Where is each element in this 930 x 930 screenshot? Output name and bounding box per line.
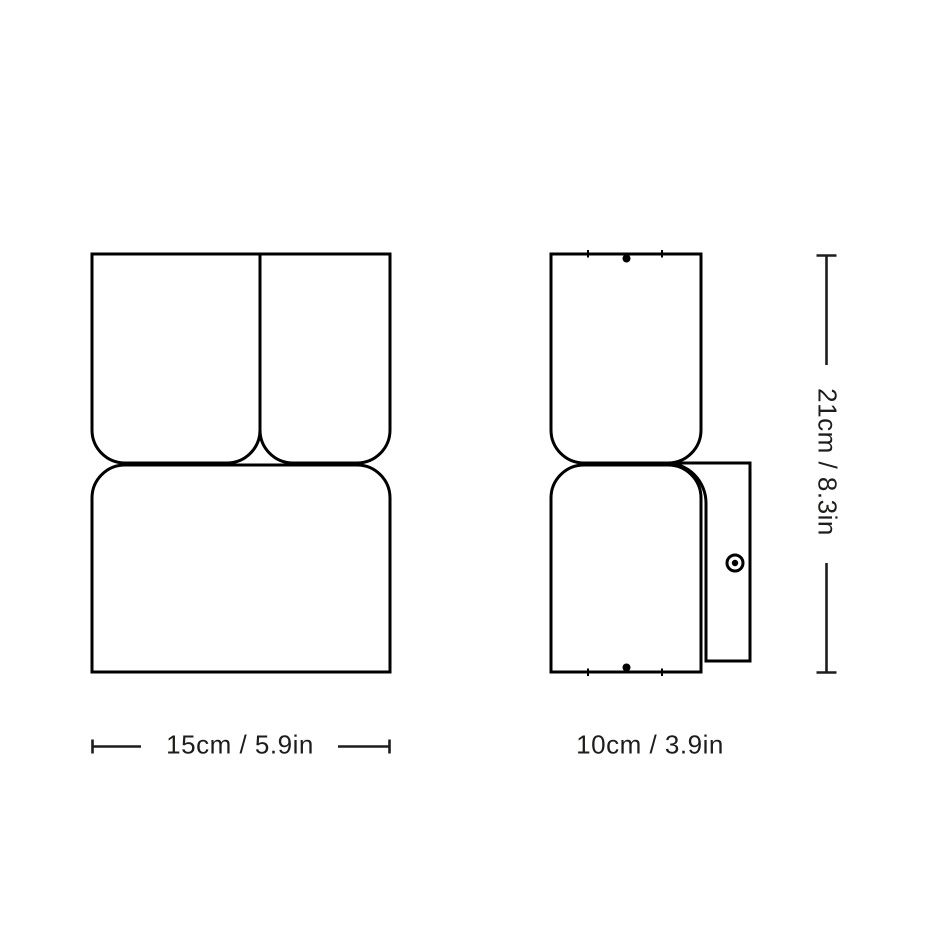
side-upper-shade (551, 254, 701, 463)
height-dimension-label: 21cm / 8.3in (812, 388, 843, 536)
side-lower-shade (551, 465, 701, 672)
front-lower-shade (92, 465, 390, 672)
depth-dimension-label: 10cm / 3.9in (576, 730, 724, 761)
line-drawing (0, 0, 930, 930)
front-view-drawing (92, 254, 390, 672)
bottom-pin-dot (623, 664, 631, 672)
top-pin-dot (623, 255, 631, 263)
lamp-dimension-diagram: 15cm / 5.9in 10cm / 3.9in 21cm / 8.3in (0, 0, 930, 930)
width-dimension-label: 15cm / 5.9in (166, 730, 314, 761)
side-view-drawing (551, 250, 750, 676)
front-upper-right-shade (260, 254, 390, 463)
front-upper-left-shade (92, 254, 260, 463)
